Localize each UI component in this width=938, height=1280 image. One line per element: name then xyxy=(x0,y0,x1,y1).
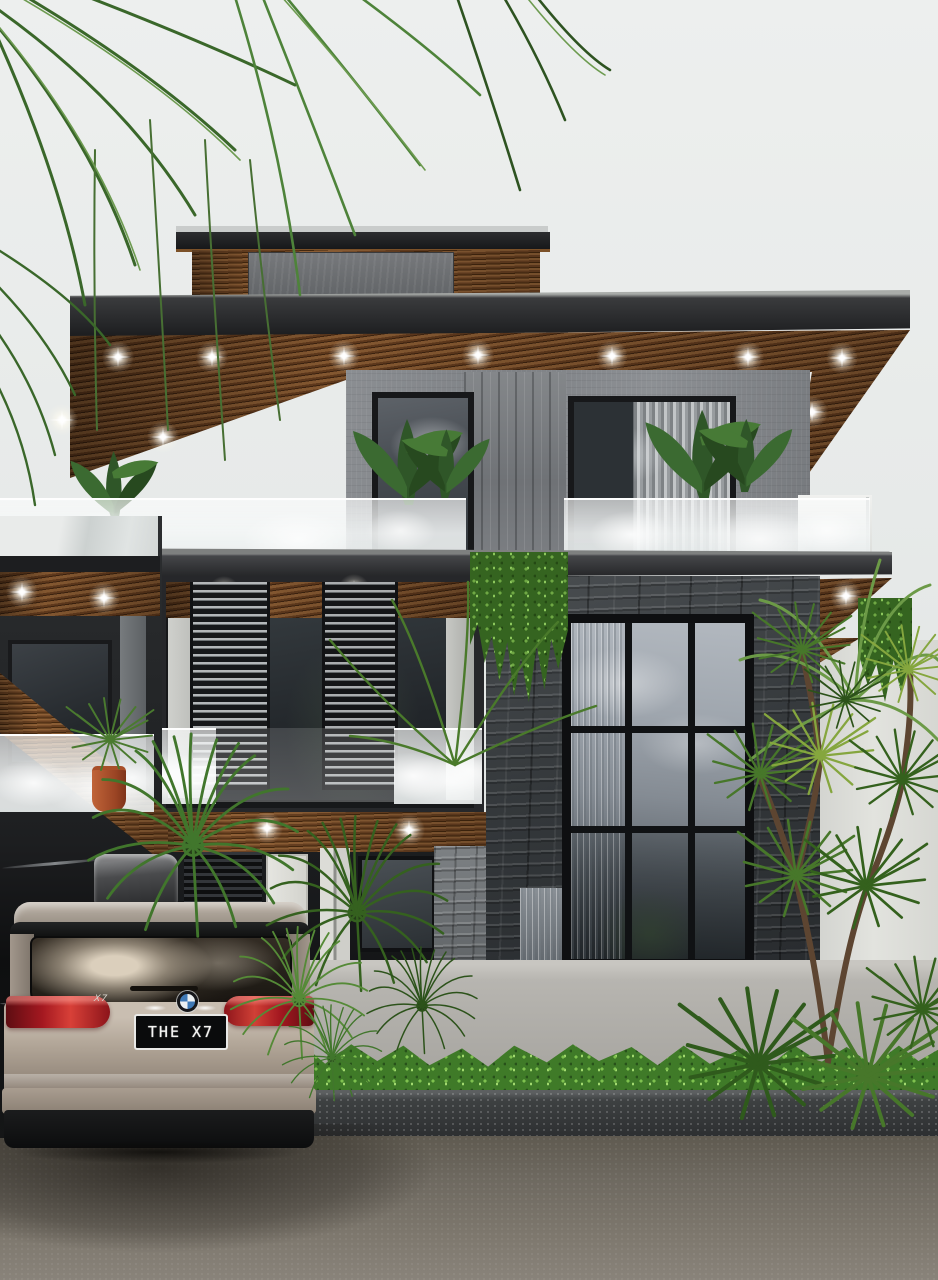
grid-window-fluted-column xyxy=(571,623,627,959)
architectural-render-scene: X7 THE X7 xyxy=(0,0,938,1280)
penthouse-roof-fascia xyxy=(176,232,550,252)
entry-window xyxy=(358,856,436,952)
penthouse-concrete-panel xyxy=(248,252,454,300)
grid-window-mullion xyxy=(571,826,745,833)
taillight-right xyxy=(224,996,314,1026)
carport-balustrade xyxy=(0,734,154,812)
carport-wood-soffit xyxy=(0,572,160,616)
carport-glass-top xyxy=(0,516,158,558)
bmw-x7-car: X7 THE X7 xyxy=(2,844,316,1164)
license-plate: THE X7 xyxy=(134,1014,228,1050)
grid-window-mullion xyxy=(625,623,632,959)
fluted-glass-panel xyxy=(520,888,566,970)
terracotta-pot xyxy=(92,766,126,812)
middle-balustrade-center xyxy=(216,728,394,802)
upper-floor-center-pier xyxy=(464,372,566,556)
grid-window-mullion xyxy=(688,623,695,959)
roof-cargo-box xyxy=(94,854,178,906)
upper-balustrade-right xyxy=(564,498,870,556)
middle-balustrade-right xyxy=(394,728,482,804)
grid-window-mullion xyxy=(571,726,745,733)
plate-light-glow xyxy=(190,1004,220,1012)
x7-tailgate-badge: X7 xyxy=(93,994,108,1004)
carport-fascia xyxy=(0,556,160,572)
car-underside-shadow xyxy=(0,1140,324,1164)
plate-light-glow xyxy=(140,1004,170,1012)
